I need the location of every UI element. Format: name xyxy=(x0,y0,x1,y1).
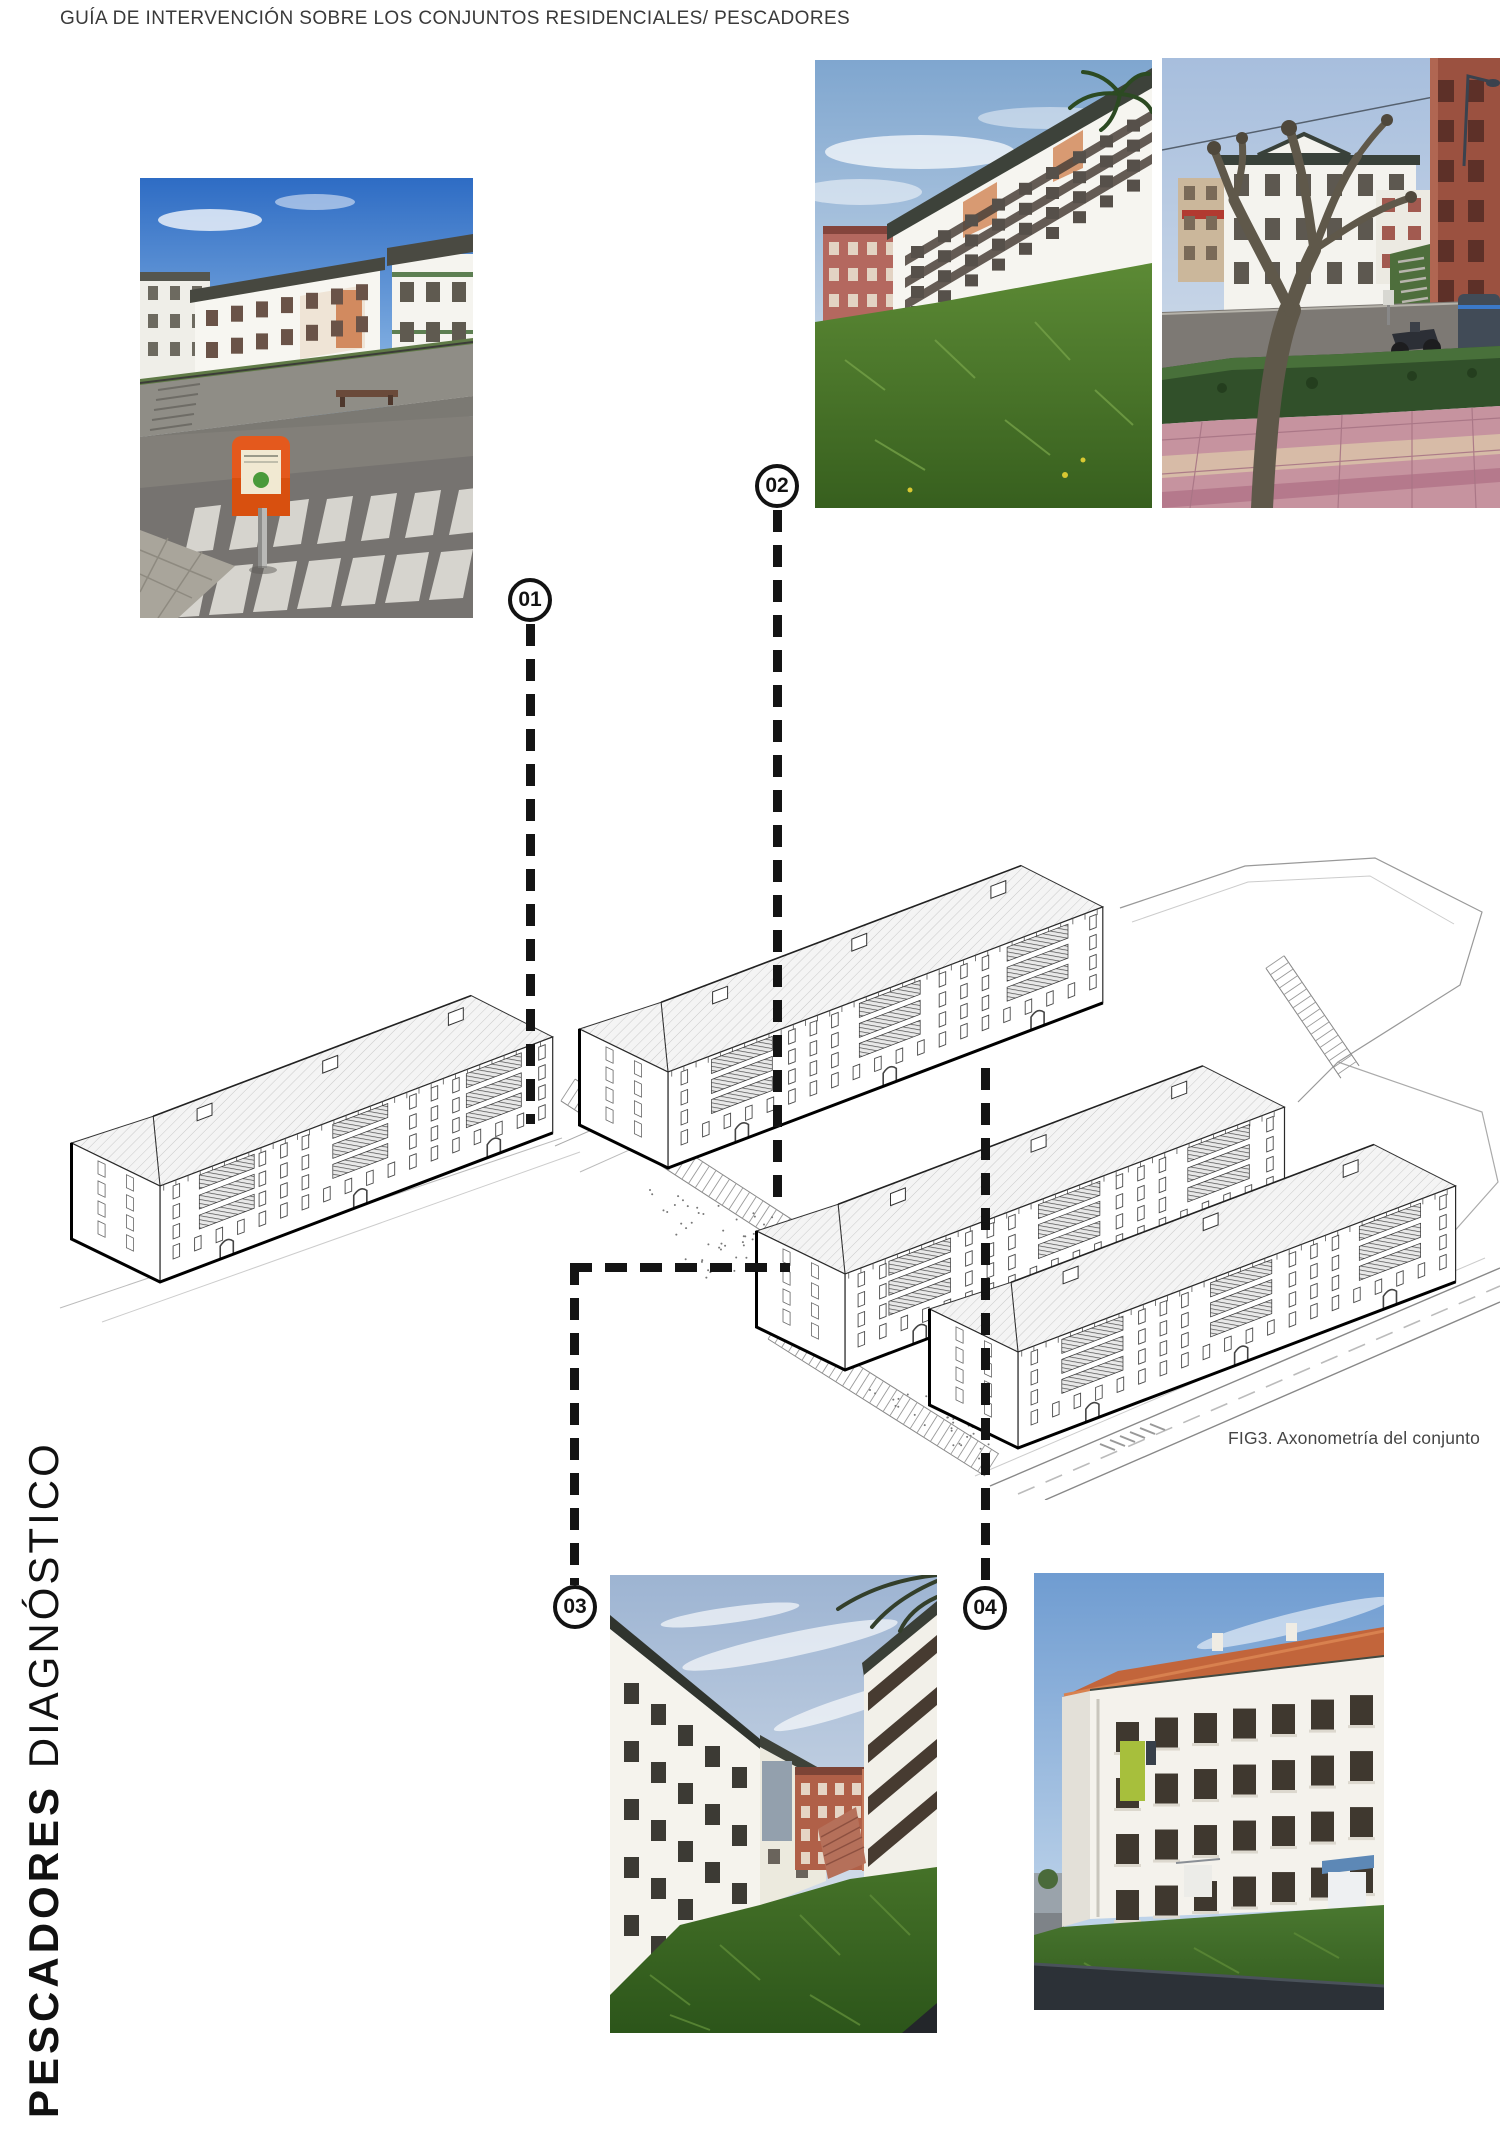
photo-street-crosswalk xyxy=(140,178,473,618)
marker-01: 01 xyxy=(508,578,552,622)
document-page: GUÍA DE INTERVENCIÓN SOBRE LOS CONJUNTOS… xyxy=(0,0,1500,2130)
marker-02-label: 02 xyxy=(765,474,788,498)
marker-04: 04 xyxy=(963,1586,1007,1630)
photo-tree-sidewalk xyxy=(1162,58,1500,508)
connector-line-04 xyxy=(981,1068,990,1586)
photo-grass-slope xyxy=(815,60,1152,508)
connector-line-03-horizontal xyxy=(570,1263,790,1272)
axonometric-drawing xyxy=(40,850,1500,1500)
photo-courtyard xyxy=(610,1575,937,2033)
connector-line-02 xyxy=(773,510,782,1206)
connector-line-03-vertical xyxy=(570,1263,579,1585)
marker-02: 02 xyxy=(755,464,799,508)
recycling-bin xyxy=(232,436,290,516)
connector-line-01 xyxy=(526,624,535,1124)
green-towel xyxy=(1120,1741,1145,1801)
page-title: GUÍA DE INTERVENCIÓN SOBRE LOS CONJUNTOS… xyxy=(60,8,850,30)
marker-03: 03 xyxy=(553,1585,597,1629)
marker-03-label: 03 xyxy=(563,1595,586,1619)
marker-01-label: 01 xyxy=(518,588,541,612)
sidebar-project-name: PESCADORES xyxy=(20,1784,67,2118)
photo-facade-laundry xyxy=(1034,1573,1384,2010)
marker-04-label: 04 xyxy=(973,1596,996,1620)
sidebar-title: PESCADORES DIAGNÓSTICO xyxy=(20,1441,68,2118)
